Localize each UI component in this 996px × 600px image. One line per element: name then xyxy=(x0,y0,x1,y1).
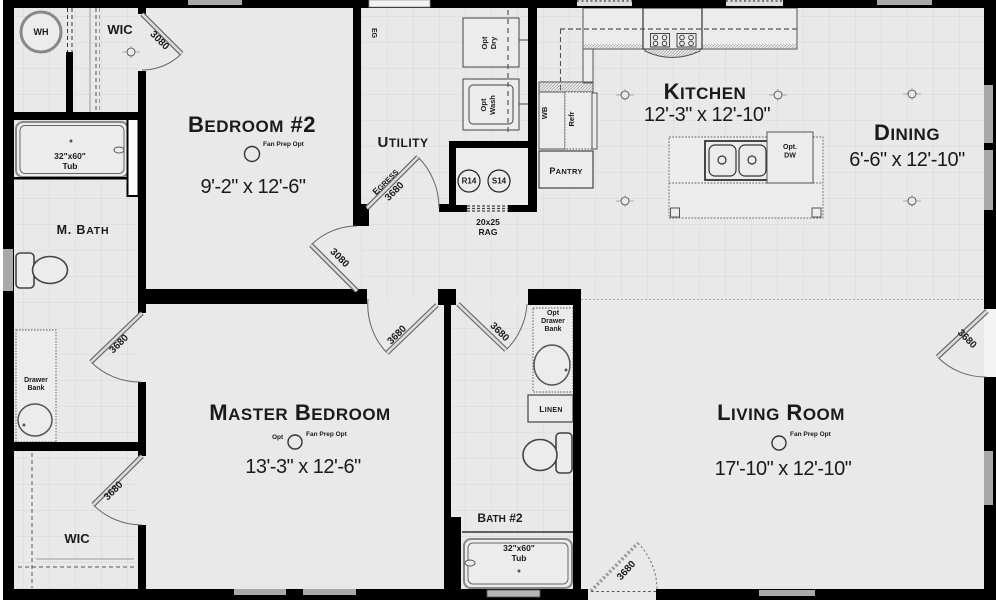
svg-text:WIC: WIC xyxy=(107,22,133,37)
svg-text:DW: DW xyxy=(784,153,796,160)
svg-text:Opt: Opt xyxy=(480,36,489,49)
svg-text:S14: S14 xyxy=(492,177,507,186)
svg-text:Drawer: Drawer xyxy=(24,377,48,384)
svg-text:Fan Prep Opt: Fan Prep Opt xyxy=(790,431,832,438)
svg-text:WIC: WIC xyxy=(64,531,90,546)
svg-text:WH: WH xyxy=(34,27,49,37)
svg-text:PANTRY: PANTRY xyxy=(549,166,582,176)
svg-text:Bank: Bank xyxy=(544,326,561,333)
svg-text:17'-10" x 12'-10": 17'-10" x 12'-10" xyxy=(715,458,852,480)
svg-text:UTILITY: UTILITY xyxy=(377,134,428,151)
svg-text:Opt: Opt xyxy=(547,310,560,317)
svg-text:Opt: Opt xyxy=(479,98,488,111)
svg-text:32"x60": 32"x60" xyxy=(503,543,535,553)
svg-text:6'-6" x 12'-10": 6'-6" x 12'-10" xyxy=(849,149,965,171)
svg-text:Tub: Tub xyxy=(512,553,527,563)
svg-text:R14: R14 xyxy=(462,177,477,186)
svg-text:Bank: Bank xyxy=(27,385,44,392)
svg-text:Dry: Dry xyxy=(489,36,498,49)
svg-text:Fan Prep Opt: Fan Prep Opt xyxy=(306,431,348,438)
svg-text:13'-3" x 12'-6": 13'-3" x 12'-6" xyxy=(245,456,361,478)
svg-text:20x25: 20x25 xyxy=(476,217,500,227)
svg-text:Opt.: Opt. xyxy=(783,144,797,151)
svg-text:BATH #2: BATH #2 xyxy=(477,511,522,525)
svg-text:M. BATH: M. BATH xyxy=(57,223,110,237)
svg-text:9'-2" x 12'-6": 9'-2" x 12'-6" xyxy=(201,176,306,198)
svg-text:32"x60": 32"x60" xyxy=(54,151,86,161)
svg-text:Wash: Wash xyxy=(488,95,497,115)
svg-text:RAG: RAG xyxy=(479,227,498,237)
svg-text:WB: WB xyxy=(540,106,549,119)
svg-text:Drawer: Drawer xyxy=(541,318,565,325)
svg-text:Refr: Refr xyxy=(567,111,576,126)
svg-text:EG: EG xyxy=(370,28,377,39)
svg-text:Opt: Opt xyxy=(272,434,284,441)
svg-text:12'-3" x 12'-10": 12'-3" x 12'-10" xyxy=(644,104,771,126)
svg-text:Fan Prep Opt: Fan Prep Opt xyxy=(263,141,305,148)
svg-text:Tub: Tub xyxy=(63,161,78,171)
